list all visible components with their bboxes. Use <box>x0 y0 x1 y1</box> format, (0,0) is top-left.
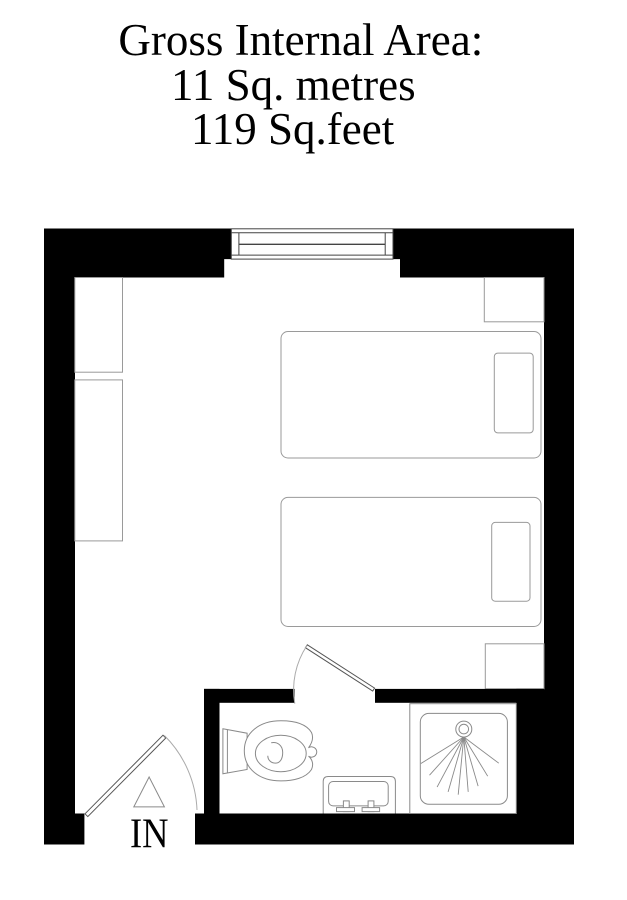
svg-text:IN: IN <box>130 811 169 858</box>
